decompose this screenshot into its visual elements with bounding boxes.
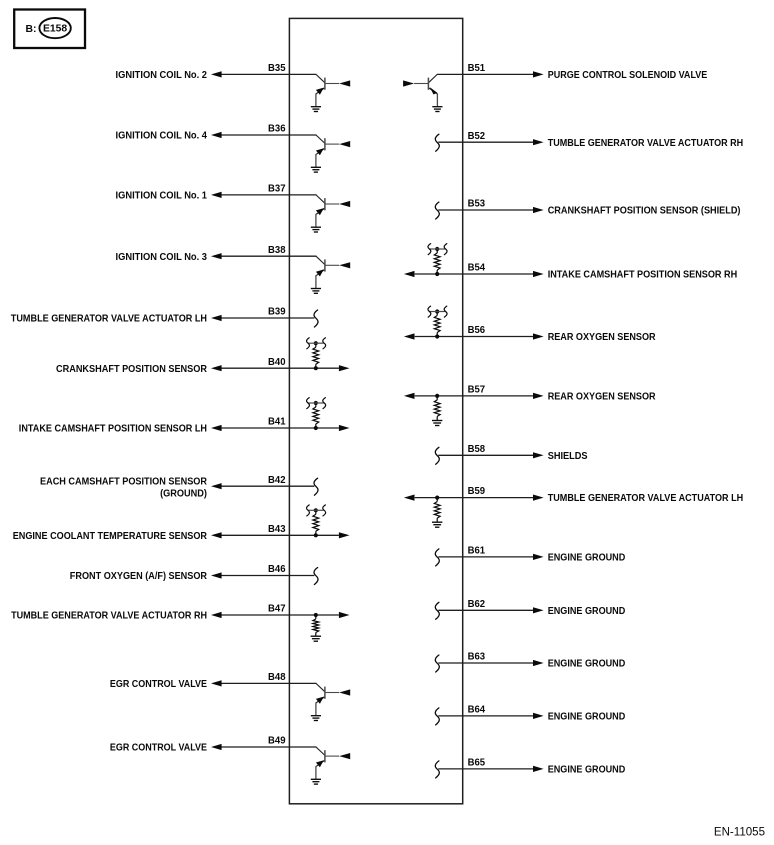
svg-text:B62: B62 — [468, 599, 486, 610]
svg-text:B53: B53 — [468, 199, 486, 210]
svg-text:B61: B61 — [468, 546, 486, 557]
svg-text:B49: B49 — [268, 736, 286, 747]
svg-text:B58: B58 — [468, 444, 486, 455]
svg-text:E158: E158 — [43, 24, 68, 35]
svg-text:EN-11055: EN-11055 — [714, 825, 766, 839]
svg-text:B38: B38 — [268, 245, 286, 256]
svg-text:B59: B59 — [468, 486, 486, 497]
svg-text:EACH CAMSHAFT POSITION SENSOR: EACH CAMSHAFT POSITION SENSOR — [40, 477, 207, 488]
svg-text:B51: B51 — [468, 63, 486, 74]
svg-text:ENGINE GROUND: ENGINE GROUND — [548, 712, 626, 723]
svg-text:B48: B48 — [268, 672, 286, 683]
svg-text:PURGE CONTROL SOLENOID VALVE: PURGE CONTROL SOLENOID VALVE — [548, 70, 708, 81]
svg-text:INTAKE CAMSHAFT POSITION SENSO: INTAKE CAMSHAFT POSITION SENSOR RH — [548, 270, 738, 281]
svg-text:EGR CONTROL VALVE: EGR CONTROL VALVE — [110, 679, 208, 690]
svg-text:TUMBLE GENERATOR VALVE ACTUATO: TUMBLE GENERATOR VALVE ACTUATOR RH — [11, 611, 207, 622]
svg-text:REAR OXYGEN SENSOR: REAR OXYGEN SENSOR — [548, 332, 656, 343]
svg-text:CRANKSHAFT POSITION SENSOR: CRANKSHAFT POSITION SENSOR — [56, 364, 207, 375]
svg-text:B46: B46 — [268, 564, 286, 575]
svg-text:B43: B43 — [268, 524, 286, 535]
svg-text:CRANKSHAFT POSITION SENSOR (SH: CRANKSHAFT POSITION SENSOR (SHIELD) — [548, 206, 741, 217]
svg-text:ENGINE GROUND: ENGINE GROUND — [548, 659, 626, 670]
svg-text:B47: B47 — [268, 604, 286, 615]
svg-text:ENGINE COOLANT TEMPERATURE SEN: ENGINE COOLANT TEMPERATURE SENSOR — [13, 531, 207, 542]
svg-text:B52: B52 — [468, 131, 486, 142]
svg-text:B57: B57 — [468, 385, 486, 396]
svg-text:ENGINE GROUND: ENGINE GROUND — [548, 553, 626, 564]
svg-text:B56: B56 — [468, 325, 486, 336]
svg-text:B42: B42 — [268, 475, 286, 486]
svg-text:B64: B64 — [468, 705, 486, 716]
svg-text:ENGINE GROUND: ENGINE GROUND — [548, 606, 626, 617]
svg-text:REAR OXYGEN SENSOR: REAR OXYGEN SENSOR — [548, 392, 656, 403]
svg-text:B65: B65 — [468, 758, 486, 769]
svg-text:SHIELDS: SHIELDS — [548, 451, 588, 462]
svg-text:IGNITION COIL No. 1: IGNITION COIL No. 1 — [116, 191, 208, 202]
svg-text:IGNITION COIL No. 4: IGNITION COIL No. 4 — [116, 131, 208, 142]
svg-text:B63: B63 — [468, 652, 486, 663]
svg-text:IGNITION COIL No. 3: IGNITION COIL No. 3 — [116, 252, 208, 263]
svg-text:IGNITION COIL No. 2: IGNITION COIL No. 2 — [116, 70, 208, 81]
svg-text:TUMBLE GENERATOR VALVE ACTUATO: TUMBLE GENERATOR VALVE ACTUATOR LH — [548, 493, 744, 504]
svg-text:FRONT OXYGEN (A/F) SENSOR: FRONT OXYGEN (A/F) SENSOR — [70, 571, 207, 582]
svg-text:B:: B: — [26, 24, 37, 35]
svg-text:B54: B54 — [468, 263, 486, 274]
svg-text:B36: B36 — [268, 124, 286, 135]
svg-text:B40: B40 — [268, 357, 286, 368]
svg-text:B37: B37 — [268, 184, 286, 195]
svg-text:EGR CONTROL VALVE: EGR CONTROL VALVE — [110, 743, 208, 754]
svg-text:ENGINE GROUND: ENGINE GROUND — [548, 765, 626, 776]
svg-text:B41: B41 — [268, 417, 286, 428]
svg-text:B35: B35 — [268, 63, 286, 74]
svg-text:INTAKE CAMSHAFT POSITION SENSO: INTAKE CAMSHAFT POSITION SENSOR LH — [19, 424, 207, 435]
svg-text:TUMBLE GENERATOR VALVE ACTUATO: TUMBLE GENERATOR VALVE ACTUATOR RH — [548, 138, 744, 149]
svg-text:TUMBLE GENERATOR VALVE ACTUATO: TUMBLE GENERATOR VALVE ACTUATOR LH — [11, 314, 207, 325]
svg-text:(GROUND): (GROUND) — [160, 489, 207, 500]
svg-text:B39: B39 — [268, 307, 286, 318]
